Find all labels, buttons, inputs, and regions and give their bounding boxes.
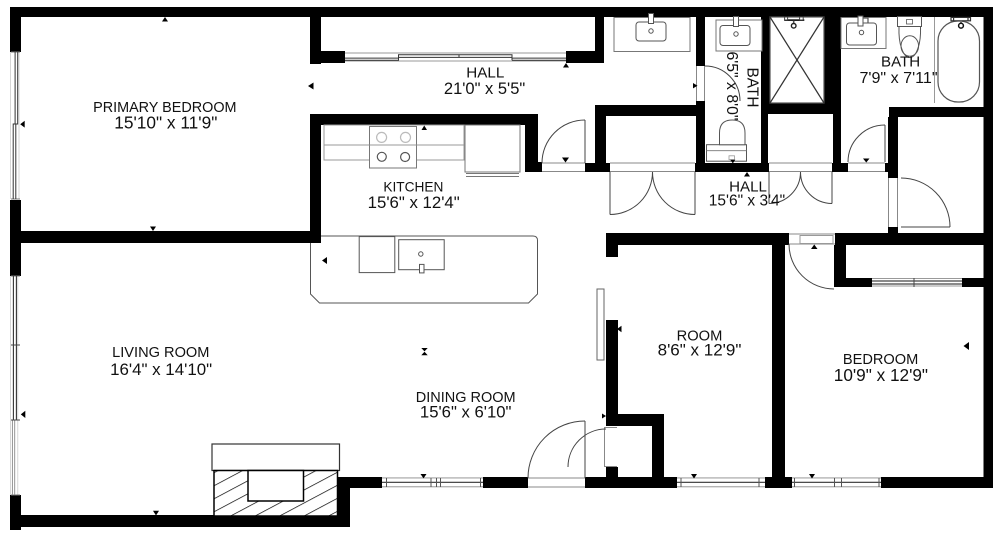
svg-text:15'10" x 11'9": 15'10" x 11'9" — [114, 113, 217, 133]
svg-text:7'9" x 7'11": 7'9" x 7'11" — [859, 69, 937, 87]
svg-text:15'6" x 3'4": 15'6" x 3'4" — [709, 193, 785, 210]
svg-text:LIVING ROOM: LIVING ROOM — [112, 345, 209, 361]
svg-text:15'6" x 12'4": 15'6" x 12'4" — [368, 193, 460, 212]
svg-text:6'5" x 8'0": 6'5" x 8'0" — [723, 51, 740, 120]
svg-text:15'6" x 6'10": 15'6" x 6'10" — [420, 403, 512, 422]
svg-text:8'6" x 12'9": 8'6" x 12'9" — [658, 340, 742, 359]
svg-text:BATH: BATH — [744, 68, 761, 108]
svg-text:21'0" x 5'5": 21'0" x 5'5" — [444, 80, 525, 98]
svg-text:10'9" x 12'9": 10'9" x 12'9" — [834, 365, 928, 385]
svg-text:16'4" x 14'10": 16'4" x 14'10" — [110, 360, 212, 379]
